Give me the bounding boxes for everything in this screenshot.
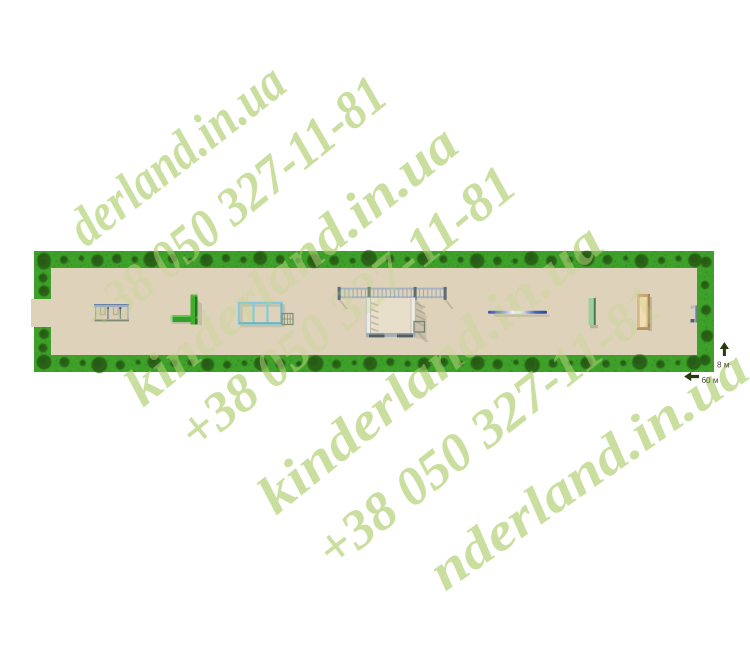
svg-text:60 м: 60 м <box>702 376 719 385</box>
svg-text:8 м: 8 м <box>717 361 730 370</box>
